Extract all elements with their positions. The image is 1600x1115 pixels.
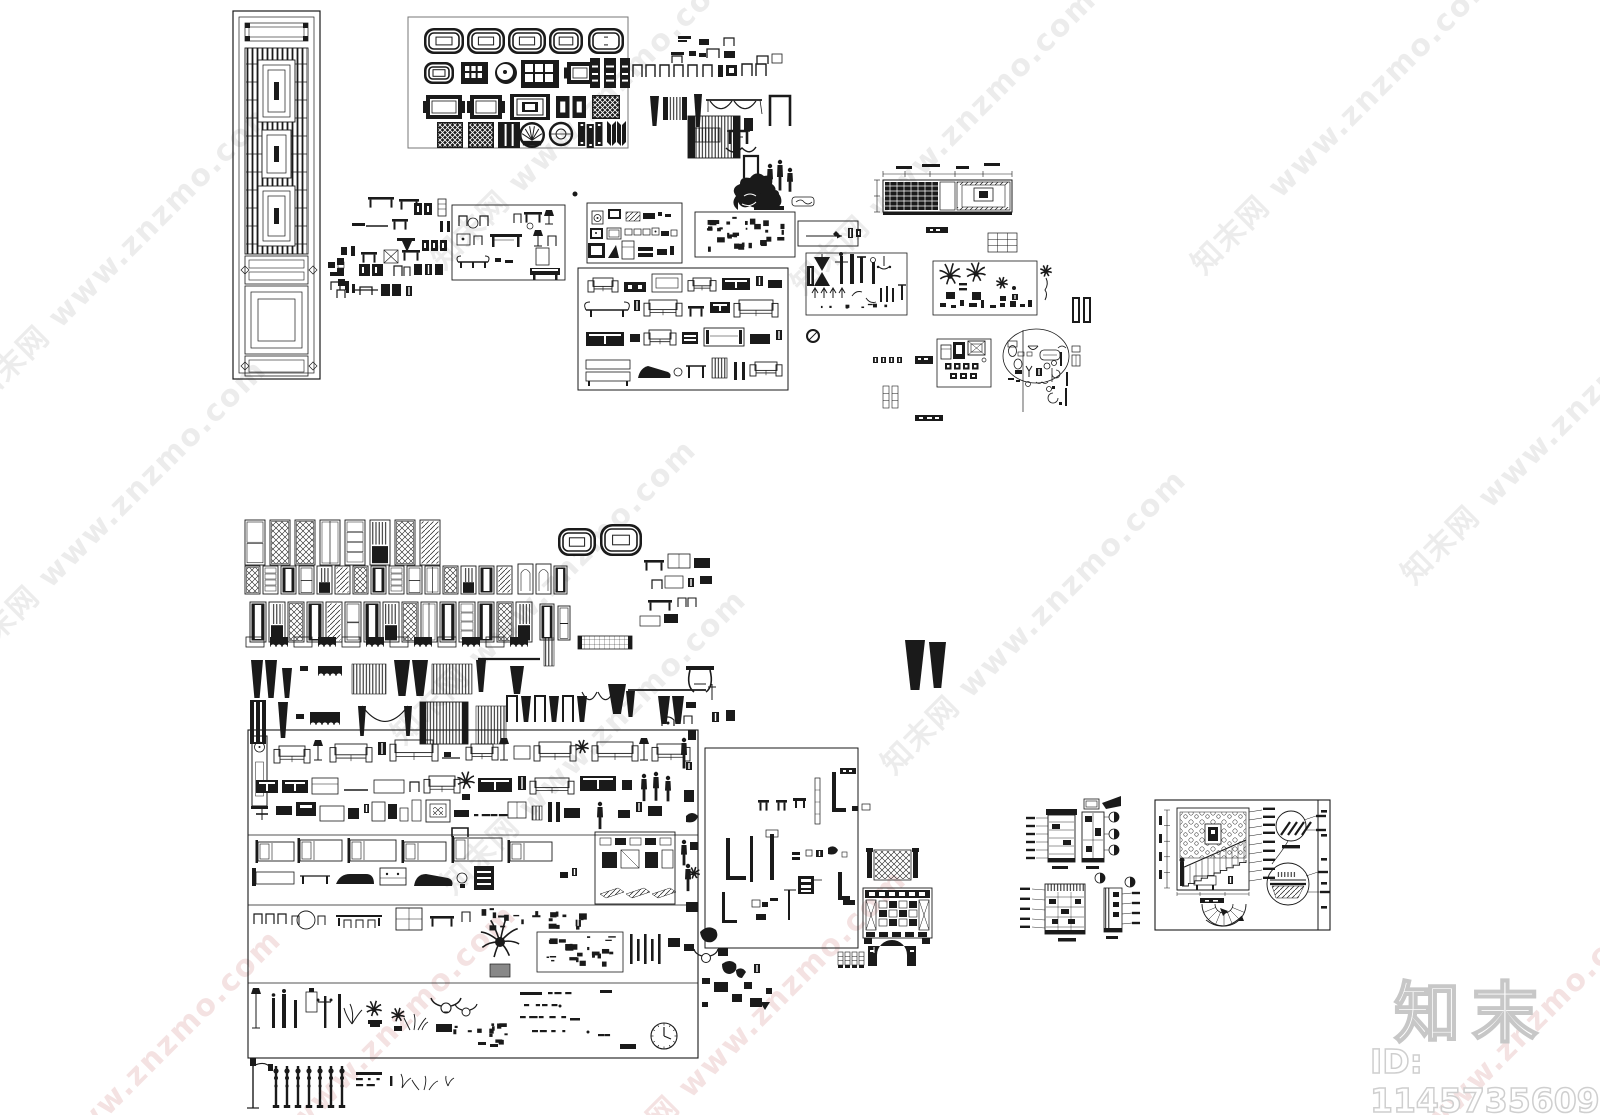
table-chair-blocks-box: [452, 205, 565, 280]
bedroom-elevation-band: [252, 828, 691, 904]
tv-wall-elevation-drawing: [874, 163, 1017, 252]
image-id-label: ID: 1145735609: [1370, 1042, 1600, 1115]
hardware-scatter-box: [695, 212, 795, 257]
arrow-detail-box: [798, 221, 861, 246]
bench-sofa-elevations-box: [578, 268, 788, 390]
electronics-blocks-box: [587, 203, 682, 263]
baluster-streetlamp-row: [247, 1058, 454, 1108]
cad-drawing-canvas: [0, 0, 1600, 1115]
table-chair-glyph-cluster: [337, 197, 450, 298]
picture-frame-blocks-box: [937, 339, 991, 387]
furniture-top-view-blocks-box: [408, 17, 630, 148]
joinery-details-box: [705, 748, 870, 948]
plant-blocks-box: [933, 261, 1052, 315]
dining-elevation-band: [254, 908, 694, 977]
cabinet-detail-drawings: [1020, 796, 1140, 942]
chinese-lattice-door-panel: [233, 11, 349, 379]
cad-block-library-sheet: 知末网 www.znzmo.com知末网 www.znzmo.com知末网 ww…: [0, 0, 1600, 1115]
curtain-blocks-rows: [246, 636, 946, 744]
mini-furniture-curtain-glyphs: [633, 36, 790, 178]
door-elevation-rows: [245, 520, 712, 642]
bathroom-fixture-blocks-ellipse: [1003, 329, 1080, 389]
lattice-arch-wall-blocks: [838, 848, 932, 968]
lamp-candle-blocks-box: [806, 252, 907, 315]
staircase-detail-sheet: [1155, 800, 1330, 930]
decor-lighting-band: [251, 988, 677, 1049]
living-room-elevation-band: [251, 736, 690, 829]
